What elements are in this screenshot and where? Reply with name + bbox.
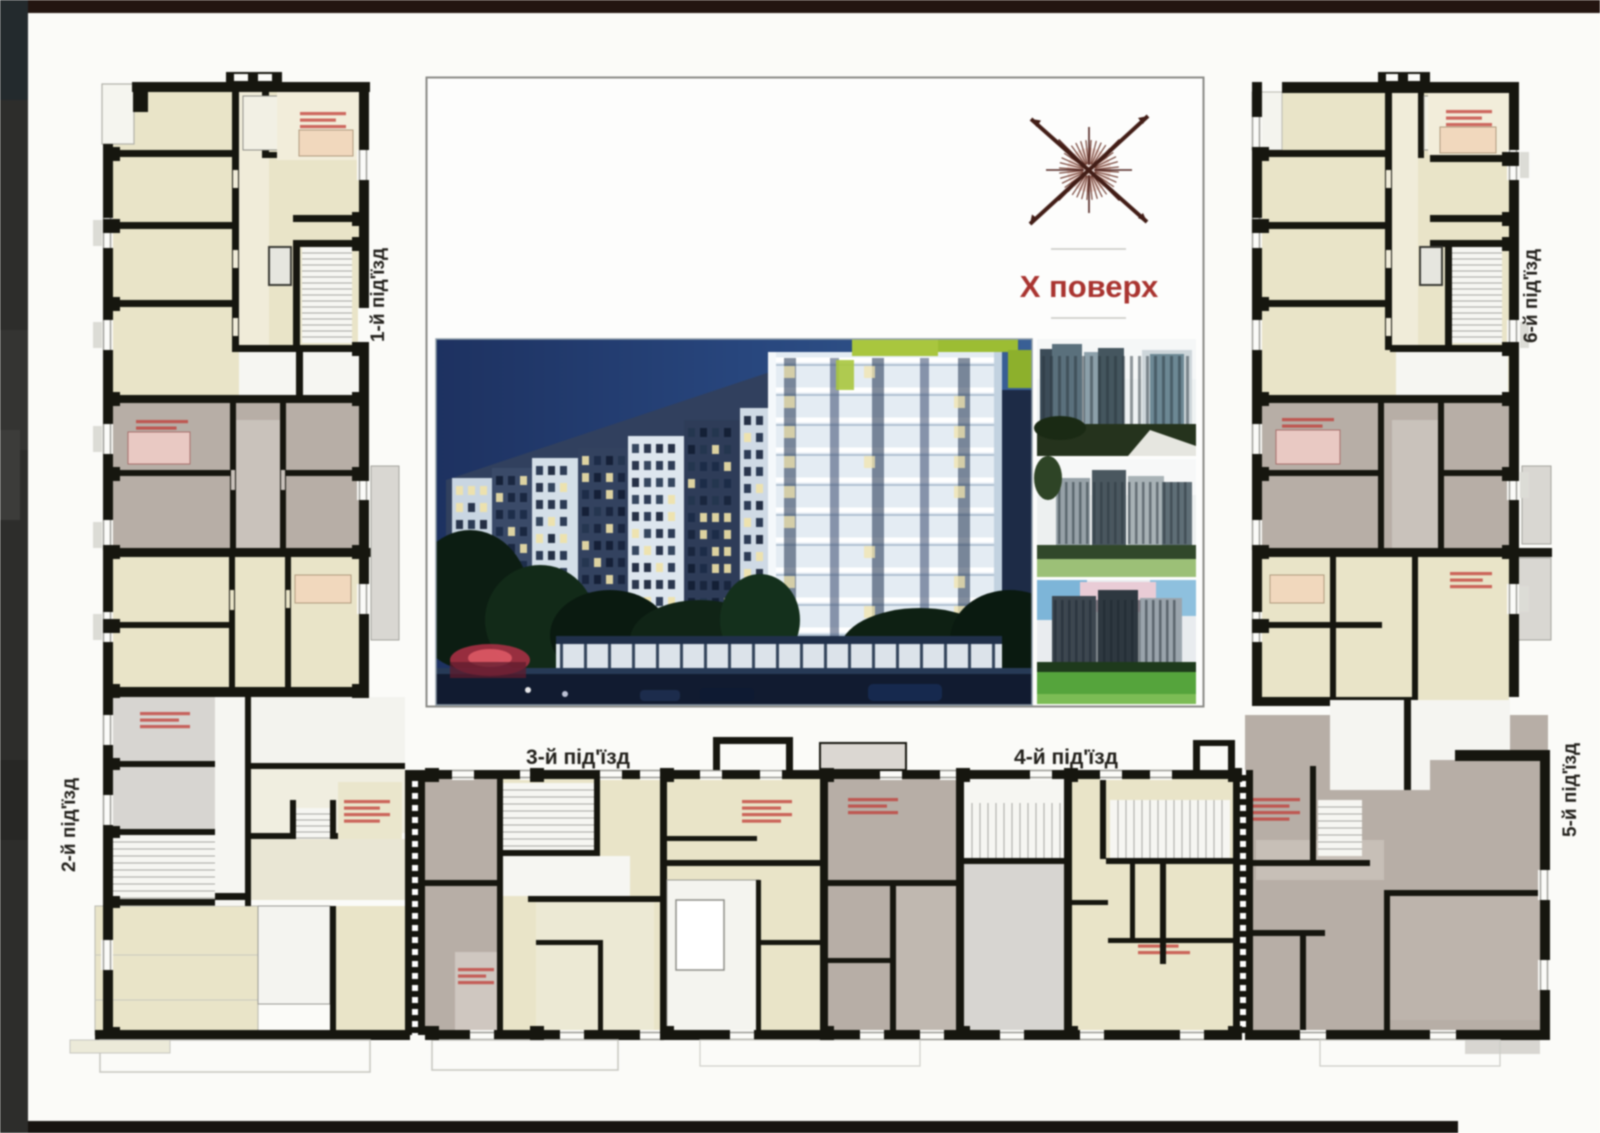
svg-text:1-й під'їзд: 1-й під'їзд: [368, 248, 389, 342]
svg-text:6-й під'їзд: 6-й під'їзд: [1521, 249, 1542, 343]
svg-text:3-й під'їзд: 3-й під'їзд: [526, 746, 630, 769]
svg-text:Х поверх: Х поверх: [1020, 269, 1159, 304]
svg-text:5-й під'їзд: 5-й під'їзд: [1560, 743, 1581, 837]
svg-text:4-й під'їзд: 4-й під'їзд: [1014, 746, 1118, 769]
svg-text:2-й під'їзд: 2-й під'їзд: [59, 778, 80, 872]
